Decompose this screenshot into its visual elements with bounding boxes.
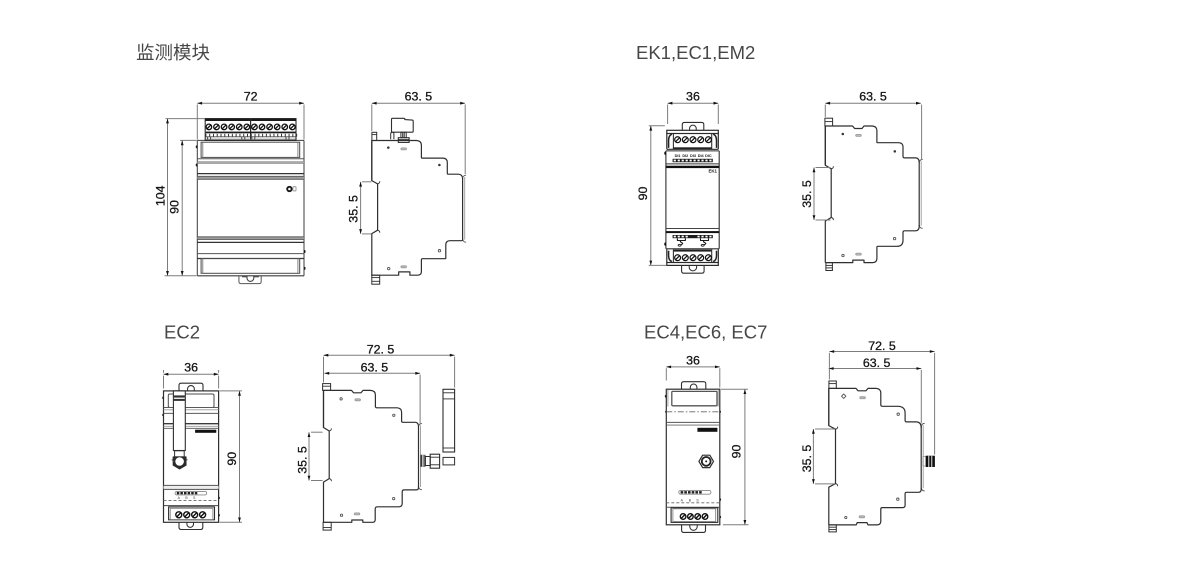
svg-text:90: 90 [225, 452, 239, 466]
svg-text:A: A [681, 499, 684, 503]
svg-text:90: 90 [167, 200, 181, 214]
svg-text:S: S [193, 496, 196, 500]
svg-text:63. 5: 63. 5 [361, 361, 389, 375]
svg-text:63. 5: 63. 5 [863, 356, 891, 370]
svg-text:35. 5: 35. 5 [800, 180, 814, 208]
svg-text:DI4: DI4 [698, 154, 705, 158]
svg-text:35. 5: 35. 5 [800, 445, 814, 473]
svg-text:A: A [178, 496, 181, 500]
svg-text:36: 36 [686, 90, 700, 104]
svg-text:EK1,EC1,EM2: EK1,EC1,EM2 [636, 42, 755, 63]
svg-text:35. 5: 35. 5 [296, 446, 310, 474]
svg-text:72. 5: 72. 5 [367, 343, 395, 357]
svg-text:EK1: EK1 [708, 168, 717, 173]
svg-text:DI1: DI1 [675, 154, 681, 158]
svg-text:35. 5: 35. 5 [347, 195, 361, 223]
svg-text:63. 5: 63. 5 [859, 90, 887, 104]
svg-text:DI3: DI3 [690, 154, 696, 158]
svg-text:B: B [689, 499, 692, 503]
svg-text:90: 90 [636, 187, 650, 201]
svg-text:36: 36 [184, 361, 198, 375]
svg-text:DI2: DI2 [682, 154, 688, 158]
svg-text:90: 90 [730, 445, 744, 459]
svg-text:S: S [696, 499, 699, 503]
svg-text:36: 36 [686, 353, 700, 367]
svg-text:72: 72 [244, 90, 258, 104]
svg-text:DIC: DIC [705, 154, 712, 158]
svg-text:B: B [185, 496, 188, 500]
svg-text:EC4,EC6, EC7: EC4,EC6, EC7 [644, 322, 767, 343]
svg-text:104: 104 [154, 185, 168, 206]
svg-text:63. 5: 63. 5 [405, 90, 433, 104]
svg-text:72. 5: 72. 5 [868, 339, 896, 353]
svg-text:EC2: EC2 [164, 322, 200, 343]
